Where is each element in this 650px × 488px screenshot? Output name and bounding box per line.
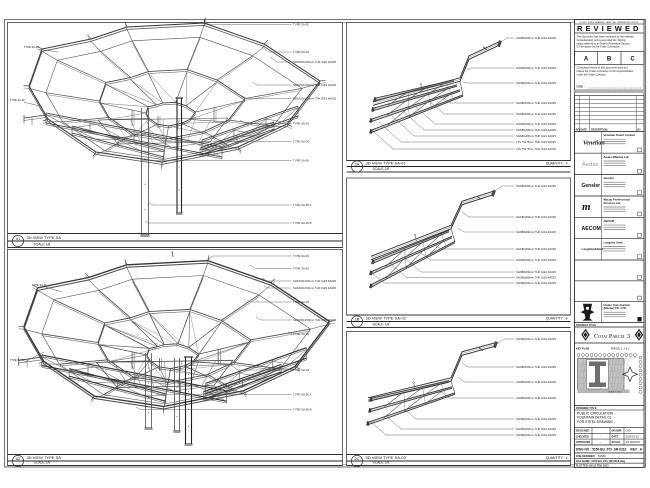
svg-text:C: C (630, 57, 635, 63)
svg-text:SHS89x89mm THK G&S #A025: SHS89x89mm THK G&S #A025 (516, 365, 556, 369)
svg-text:5.4 for action by the Trade Co: 5.4 for action by the Trade Contractor. (577, 45, 621, 49)
svg-text:TYPE SA-05 A: TYPE SA-05 A (293, 203, 311, 207)
svg-text:51520: 51520 (598, 454, 606, 458)
svg-text:status referred to in Project: status referred to in Project Procedure … (577, 41, 631, 45)
svg-text:SHS89x89mm THK G&S #A025: SHS89x89mm THK G&S #A025 (516, 433, 556, 437)
svg-text:SHS150x150mm THK G&S #A025: SHS150x150mm THK G&S #A025 (293, 286, 336, 290)
svg-text:SCALE 1/8: SCALE 1/8 (34, 243, 51, 247)
svg-text:Venetian Orient Limited: Venetian Orient Limited (604, 133, 636, 137)
svg-text:DATE: DATE (612, 434, 619, 438)
svg-text:APPROVED: APPROVED (576, 440, 591, 444)
svg-text:SHS89x89mm THK G&S #A025: SHS89x89mm THK G&S #A025 (516, 258, 556, 262)
svg-text:Aedas: Aedas (582, 162, 599, 168)
svg-text:TYPE SA-05 A: TYPE SA-05 A (293, 393, 311, 397)
svg-text:SHS150x150mm THK G&S #A025: SHS150x150mm THK G&S #A025 (293, 279, 336, 283)
svg-text:2A: 2A (355, 161, 360, 166)
svg-text:TYPE SA-02: TYPE SA-02 (10, 98, 25, 102)
svg-text:TYPE SA-03: TYPE SA-03 (293, 254, 309, 258)
svg-text:SHS89x89mm THK G&S #A025: SHS89x89mm THK G&S #A025 (516, 396, 556, 400)
svg-text:TYPE SA-03: TYPE SA-03 (293, 23, 309, 27)
svg-text:QUANTITY : 4: QUANTITY : 4 (546, 162, 568, 166)
svg-text:SCALE 1/8: SCALE 1/8 (34, 461, 51, 465)
svg-text:This document has been reviewe: This document has been reviewed by the r… (577, 35, 635, 39)
svg-text:TYPE SA-01: TYPE SA-01 (32, 283, 47, 287)
svg-text:PROJECT TITLE: PROJECT TITLE (576, 323, 596, 327)
svg-text:(Macau) CO. LTD.: (Macau) CO. LTD. (604, 306, 627, 310)
svg-text:SHS89x89mm THK G&S #A025: SHS89x89mm THK G&S #A025 (516, 66, 556, 70)
svg-text:SCALE 1/8: SCALE 1/8 (373, 461, 390, 465)
svg-text:3D VIEW TYPE SA': 3D VIEW TYPE SA' (27, 455, 62, 460)
svg-text:3D VIEW TYPE SA-03': 3D VIEW TYPE SA-03' (366, 455, 407, 460)
svg-text:2B: 2B (355, 316, 360, 321)
svg-text:TYPE SA-03: TYPE SA-03 (293, 332, 309, 336)
svg-text:SHS150x150mm THK G&S #A025: SHS150x150mm THK G&S #A025 (293, 83, 336, 87)
svg-text:LTS 75x75mm THK G&S #A025: LTS 75x75mm THK G&S #A025 (516, 140, 556, 144)
svg-text:QUANTITY : 4: QUANTITY : 4 (546, 456, 568, 460)
svg-text:3D VIEW TYPE SA-01': 3D VIEW TYPE SA-01' (366, 161, 407, 166)
svg-text:01: 01 (16, 236, 21, 241)
svg-text:LTD: LTD (585, 319, 590, 322)
svg-text:SHS150x150mm THK G&S #A025: SHS150x150mm THK G&S #A025 (293, 97, 336, 101)
svg-text:SCALE 1:2000: SCALE 1:2000 (608, 390, 622, 393)
svg-text:3D VIEW TYPE SA-02': 3D VIEW TYPE SA-02' (366, 316, 407, 321)
svg-text:SHS89x89mm THK G&S #A025: SHS89x89mm THK G&S #A025 (516, 380, 556, 384)
svg-text:KEY PLAN: KEY PLAN (576, 347, 589, 351)
svg-text:Cotai Parcel 3: Cotai Parcel 3 (594, 333, 630, 340)
svg-text:DWG NO : 5150-BU_PCI_SR-0316: DWG NO : 5150-BU_PCI_SR-0316 (576, 448, 627, 452)
svg-text:SHS89x89mm THK G&S #A025: SHS89x89mm THK G&S #A025 (516, 281, 556, 285)
svg-text:SHS89x89mm THK G&S #A025: SHS89x89mm THK G&S #A025 (516, 134, 556, 138)
svg-text:SHS89x89mm THK G&S #A025: SHS89x89mm THK G&S #A025 (516, 417, 556, 421)
svg-text:TYPE SA-04: TYPE SA-04 (293, 368, 309, 372)
svg-text:PLOTTED ON 15 FEB 2013: PLOTTED ON 15 FEB 2013 (576, 464, 609, 468)
svg-text:TYPE SA-03: TYPE SA-03 (293, 122, 309, 126)
svg-text:TYPE SA-03: TYPE SA-03 (293, 300, 309, 304)
svg-text:Langdon Seah: Langdon Seah (604, 240, 624, 244)
svg-text:REV : A: REV : A (630, 448, 642, 452)
svg-text:CAD: CAD (626, 429, 632, 433)
svg-text:Aedas (Macau) Ltd.: Aedas (Macau) Ltd. (604, 155, 630, 159)
svg-text:TYPE SA-02: TYPE SA-02 (10, 358, 25, 362)
svg-text:m: m (582, 201, 591, 213)
svg-text:SHS89x89mm THK G&S #A025: SHS89x89mm THK G&S #A025 (516, 36, 556, 40)
svg-text:TYPE SA-05: TYPE SA-05 (293, 159, 309, 163)
svg-text:SHS89x89mm THK G&S #A025: SHS89x89mm THK G&S #A025 (516, 276, 556, 280)
svg-text:SHS89x89mm THK G&S #A025: SHS89x89mm THK G&S #A025 (516, 81, 556, 85)
svg-text:SHS150x150mm THK G&S #A025: SHS150x150mm THK G&S #A025 (293, 318, 336, 322)
svg-text:Date :: Date : (577, 85, 586, 89)
svg-text:TYPE SA-01: TYPE SA-01 (24, 45, 39, 49)
svg-text:-: - (600, 435, 601, 438)
svg-text:TYPE SA-03: TYPE SA-03 (293, 267, 309, 271)
svg-text:Consultant review of this docu: Consultant review of this document does … (577, 66, 628, 70)
svg-text:FILE NAME: 5150-BU_PCI_SR-0316: FILE NAME: 5150-BU_PCI_SR-0316.dwg (576, 459, 626, 463)
svg-text:TYPE SA-03: TYPE SA-03 (293, 50, 309, 54)
svg-text:under the Trade Contract.: under the Trade Contract. (577, 72, 607, 76)
svg-text:SHS89x89mm THK G&S #A025: SHS89x89mm THK G&S #A025 (516, 128, 556, 132)
svg-text:2C: 2C (354, 456, 359, 461)
svg-text:Consultants(s) and is accorded: Consultants(s) and is accorded the 'Noti… (577, 38, 627, 42)
svg-text:SCALE 1/8: SCALE 1/8 (373, 167, 390, 171)
svg-text:B: B (607, 57, 612, 63)
svg-text:relieve the Trade Contractor o: relieve the Trade Contractor of his resp… (577, 69, 635, 73)
svg-text:SHS89x89mm THK G&S #A025: SHS89x89mm THK G&S #A025 (516, 215, 556, 219)
svg-text:SHS89x89mm THK G&S #A025: SHS89x89mm THK G&S #A025 (516, 230, 556, 234)
svg-text:DESCRIPTION: DESCRIPTION (591, 129, 608, 132)
svg-text:SCALE: SCALE (612, 440, 621, 444)
svg-text:SHS89x89mm THK G&S #A025: SHS89x89mm THK G&S #A025 (516, 101, 556, 105)
svg-text:DESIGNED: DESIGNED (576, 429, 590, 433)
svg-text:Gensler: Gensler (604, 176, 615, 180)
svg-text:FOR STEEL DRAWING: FOR STEEL DRAWING (577, 420, 613, 424)
svg-text:Gensler: Gensler (582, 183, 601, 189)
svg-text:3D VIEW TYPE SA: 3D VIEW TYPE SA (27, 235, 62, 240)
svg-text:SHS89x89mm THK G&S #A025: SHS89x89mm THK G&S #A025 (516, 337, 556, 341)
svg-text:PARCEL 1, 2 & 3: PARCEL 1, 2 & 3 (611, 348, 630, 351)
svg-text:SHS89x89mm THK G&S #A025: SHS89x89mm THK G&S #A025 (516, 184, 556, 188)
svg-text:LTS 75x75mm THK G&S #A025: LTS 75x75mm THK G&S #A025 (516, 147, 556, 151)
svg-text:SCALE 1/8: SCALE 1/8 (373, 323, 390, 327)
svg-text:AECOM: AECOM (604, 219, 615, 223)
svg-text:SHS89x89mm THK G&S #A025: SHS89x89mm THK G&S #A025 (516, 270, 556, 274)
svg-text:TYPE SA-05 B: TYPE SA-05 B (293, 408, 312, 412)
svg-text:QUANTITY : 4: QUANTITY : 4 (546, 317, 568, 321)
svg-text:SHS89x89mm THK G&S #A025: SHS89x89mm THK G&S #A025 (516, 112, 556, 116)
svg-text:DATE: DATE (581, 129, 588, 132)
svg-text:2013-02-15: 2013-02-15 (626, 434, 640, 438)
svg-text:JOB NUMBER: JOB NUMBER (576, 454, 595, 458)
svg-text:SHS89x89mm THK G&S #A025: SHS89x89mm THK G&S #A025 (516, 427, 556, 431)
svg-text:CHECKED: CHECKED (576, 434, 589, 438)
svg-text:Services Ltd.: Services Ltd. (604, 201, 622, 205)
svg-text:SHS89x89mm THK G&S #A025: SHS89x89mm THK G&S #A025 (516, 122, 556, 126)
svg-text:SHS89x89mm THK G&S #A025: SHS89x89mm THK G&S #A025 (516, 247, 556, 251)
svg-text:SHS150x150mm THK G&S #A025: SHS150x150mm THK G&S #A025 (293, 60, 336, 64)
svg-text:DRAWING TITLE: DRAWING TITLE (576, 406, 597, 410)
svg-text:Venetian: Venetian (583, 141, 605, 147)
svg-text:02: 02 (16, 456, 21, 461)
svg-text:-: - (600, 441, 601, 444)
svg-text:A: A (584, 57, 589, 63)
svg-text:BY: BY (637, 129, 641, 132)
svg-text:AECOM: AECOM (582, 226, 601, 232)
svg-text:REVIEWED: REVIEWED (577, 24, 642, 33)
svg-text:DRAWN: DRAWN (612, 429, 622, 433)
svg-text:TYPE SA-04: TYPE SA-04 (293, 140, 309, 144)
svg-text:AS SHOWN: AS SHOWN (626, 440, 640, 444)
svg-text:TYPE SA-05 B: TYPE SA-05 B (293, 221, 312, 225)
svg-text:Langdon&Seah: Langdon&Seah (582, 247, 604, 251)
